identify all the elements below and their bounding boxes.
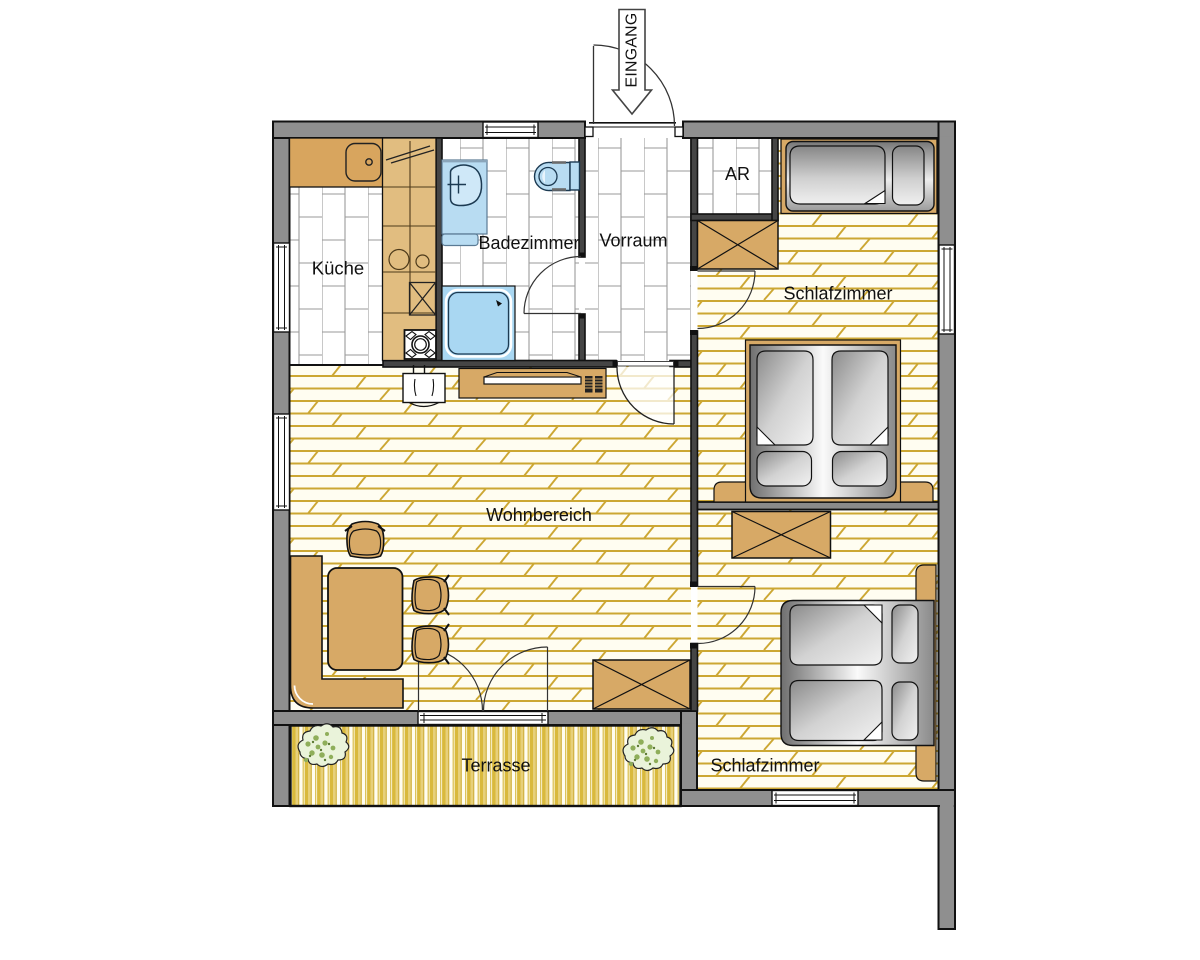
- svg-text:Küche: Küche: [312, 258, 364, 279]
- svg-text:AR: AR: [725, 164, 750, 184]
- svg-text:Schlafzimmer: Schlafzimmer: [710, 756, 819, 776]
- svg-text:Vorraum: Vorraum: [599, 231, 667, 251]
- svg-text:Terrasse: Terrasse: [461, 756, 530, 776]
- svg-text:Schlafzimmer: Schlafzimmer: [783, 284, 892, 304]
- svg-text:EINGANG: EINGANG: [624, 13, 641, 88]
- svg-text:Wohnbereich: Wohnbereich: [486, 505, 592, 525]
- svg-text:Badezimmer: Badezimmer: [478, 233, 579, 253]
